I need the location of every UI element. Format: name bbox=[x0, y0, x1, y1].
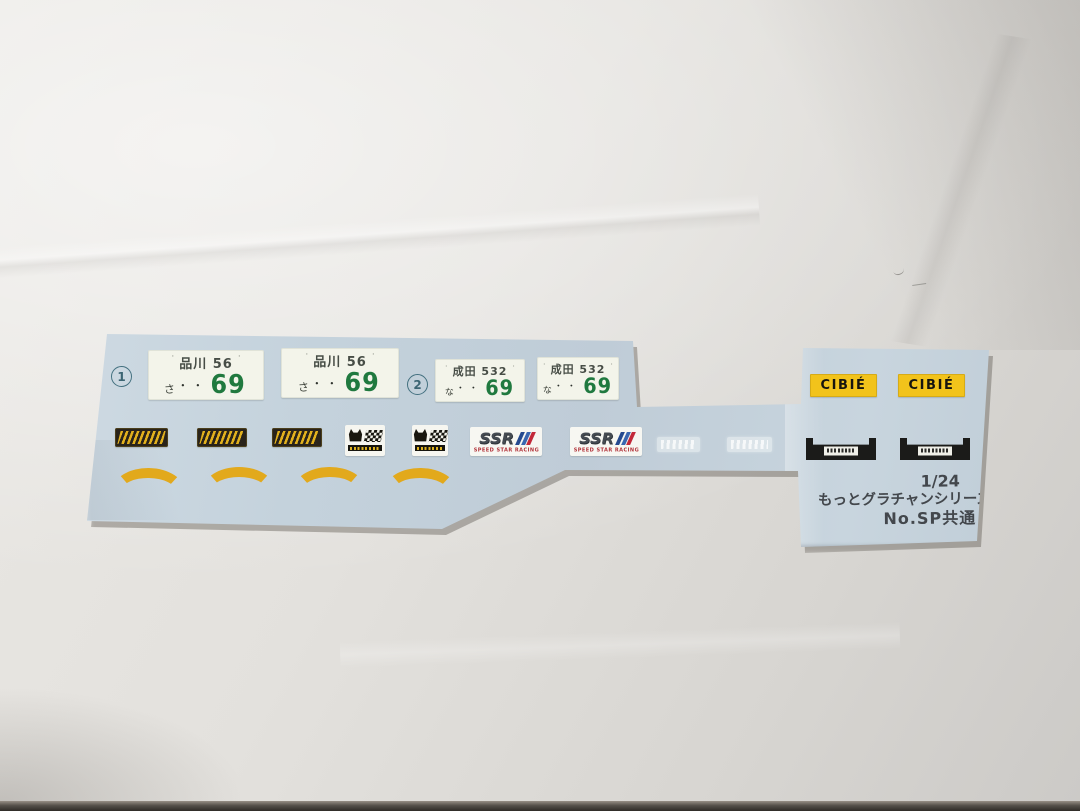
plate-number: 69 bbox=[485, 378, 514, 399]
cat-head-icon bbox=[348, 429, 363, 442]
plate-kana: な bbox=[543, 386, 553, 396]
plate-garnish-decal bbox=[806, 438, 876, 460]
plate-bolt-dot: · bbox=[305, 351, 308, 360]
cat-logo-text-bar bbox=[415, 445, 445, 451]
cat-logo-text-bar bbox=[348, 445, 382, 451]
stylized-yellow-logo-decal bbox=[197, 428, 247, 447]
faint-clear-logo-decal bbox=[657, 437, 700, 452]
kit-number-text: No.SP共通 bbox=[818, 509, 978, 530]
checkered-flag-icon bbox=[364, 430, 384, 442]
plate-bolt-dot: · bbox=[171, 353, 174, 362]
plate-dots: ・・ bbox=[177, 380, 207, 391]
plate-kana: さ bbox=[298, 381, 310, 393]
plate-bolt-dot: · bbox=[512, 363, 515, 371]
stylized-yellow-logo-lettering bbox=[117, 431, 165, 444]
license-plate-decal-narita-1: · 成田 532 · な ・・ 69 bbox=[435, 359, 525, 402]
cibie-logo-text: CIBIÉ bbox=[908, 378, 954, 394]
item-marker-2-number: 2 bbox=[413, 378, 421, 392]
ssr-stripes-icon bbox=[615, 432, 636, 445]
checkered-flag-icon bbox=[429, 430, 449, 442]
license-plate-decal-shinagawa-2: · 品川 56 · さ ・・ 69 bbox=[281, 348, 399, 398]
paper-shadow-bottom-left bbox=[0, 653, 320, 803]
plate-bolt-dot: · bbox=[445, 363, 448, 371]
ssr-subtext: SPEED STAR RACING bbox=[473, 447, 538, 453]
plate-bolt-dot: · bbox=[372, 351, 375, 360]
cat-checkered-flag-logo-decal bbox=[345, 425, 385, 456]
stylized-yellow-logo-lettering bbox=[199, 431, 244, 444]
plate-kana: な bbox=[445, 388, 455, 398]
ssr-stripes-icon bbox=[515, 432, 536, 445]
yellow-arc-stripe-decal bbox=[293, 466, 365, 483]
cibie-logo-text: CIBIÉ bbox=[820, 378, 866, 394]
plate-bolt-dot: · bbox=[238, 353, 241, 362]
plate-dots: ・・ bbox=[554, 383, 580, 392]
faint-clear-logo-decal bbox=[727, 437, 772, 452]
plate-region-text: 成田 532 bbox=[453, 366, 508, 377]
plate-bolt-dot: · bbox=[543, 361, 546, 369]
plate-garnish-decal bbox=[900, 438, 970, 460]
ssr-subtext: SPEED STAR RACING bbox=[573, 447, 638, 453]
plate-number: 69 bbox=[211, 372, 246, 398]
plate-dots: ・・ bbox=[311, 378, 341, 389]
yellow-arc-stripe-decal bbox=[203, 467, 275, 483]
plate-kana: さ bbox=[164, 383, 176, 395]
cat-head-icon bbox=[413, 429, 428, 442]
cibie-logo-decal: CIBIÉ bbox=[898, 374, 965, 397]
garnish-maker-label bbox=[824, 446, 858, 455]
stylized-yellow-logo-decal bbox=[115, 428, 168, 447]
ssr-logo-text: SSR bbox=[579, 429, 614, 447]
license-plate-decal-narita-2: · 成田 532 · な ・・ 69 bbox=[537, 357, 619, 400]
cat-checkered-flag-logo-decal bbox=[412, 425, 448, 456]
table-edge bbox=[0, 801, 1080, 811]
item-marker-2: 2 bbox=[407, 374, 428, 395]
item-marker-1: 1 bbox=[111, 366, 132, 387]
stylized-yellow-logo-decal bbox=[272, 428, 322, 447]
scale-text: 1/24 bbox=[818, 471, 978, 492]
item-marker-1-number: 1 bbox=[117, 370, 125, 384]
plate-region-text: 成田 532 bbox=[551, 364, 606, 375]
cibie-logo-decal: CIBIÉ bbox=[810, 374, 877, 397]
ssr-logo-decal: SSR SPEED STAR RACING bbox=[570, 427, 642, 456]
license-plate-decal-shinagawa-1: · 品川 56 · さ ・・ 69 bbox=[148, 350, 264, 400]
sheet-caption: 1/24 もっとグラチャンシリーズ No.SP共通 bbox=[818, 471, 978, 529]
series-name-text: もっとグラチャンシリーズ bbox=[818, 491, 978, 510]
plate-bolt-dot: · bbox=[610, 361, 613, 369]
plate-number: 69 bbox=[583, 376, 612, 397]
ssr-logo-decal: SSR SPEED STAR RACING bbox=[470, 427, 542, 456]
plate-region-text: 品川 56 bbox=[179, 358, 233, 371]
sheet-sheen bbox=[85, 440, 225, 520]
garnish-maker-label bbox=[918, 446, 952, 455]
yellow-arc-stripe-decal bbox=[385, 467, 457, 484]
plate-dots: ・・ bbox=[456, 385, 482, 394]
plate-region-text: 品川 56 bbox=[313, 356, 367, 369]
plate-number: 69 bbox=[345, 370, 380, 396]
stylized-yellow-logo-lettering bbox=[274, 431, 319, 444]
yellow-arc-stripe-decal bbox=[113, 467, 185, 484]
ssr-logo-text: SSR bbox=[479, 429, 514, 447]
